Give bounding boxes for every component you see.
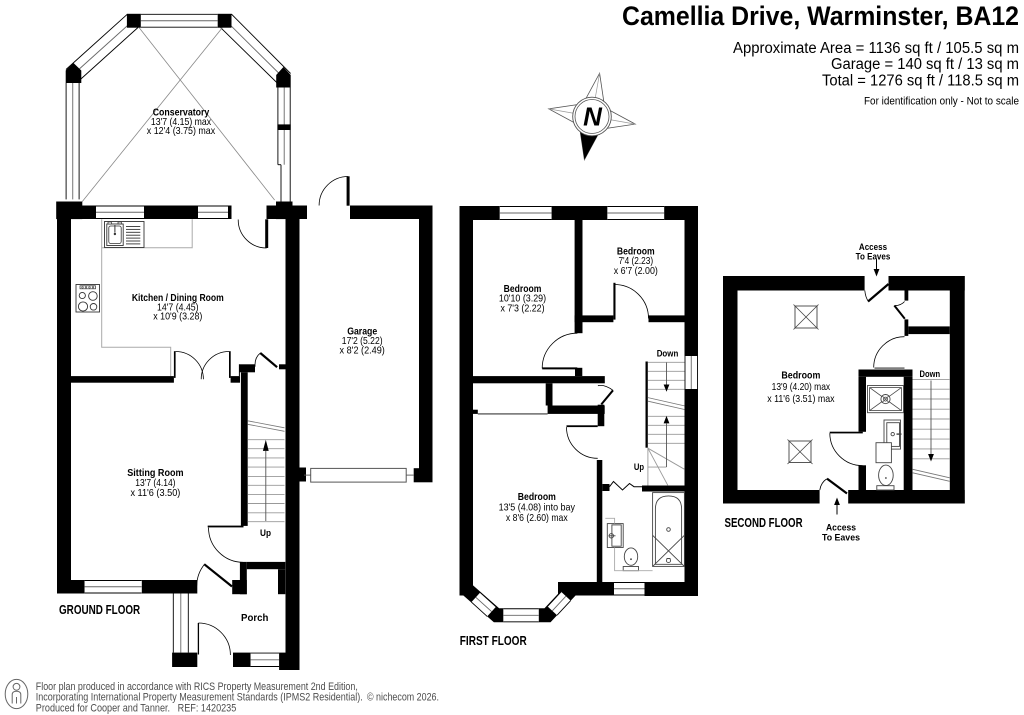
- svg-text:© nichecom 2026.: © nichecom 2026.: [367, 692, 439, 704]
- svg-text:Porch: Porch: [241, 612, 268, 624]
- svg-text:To Eaves: To Eaves: [822, 533, 860, 544]
- svg-text:For identification only - Not: For identification only - Not to scale: [864, 96, 1019, 108]
- svg-text:x 7'3 (2.22): x 7'3 (2.22): [500, 302, 544, 314]
- svg-text:Camellia Drive, Warminster, BA: Camellia Drive, Warminster, BA12: [622, 1, 1019, 31]
- svg-text:Garage = 140 sq ft / 13 sq m: Garage = 140 sq ft / 13 sq m: [831, 56, 1019, 73]
- svg-text:x 11'6 (3.50): x 11'6 (3.50): [130, 487, 180, 499]
- svg-text:N: N: [583, 102, 603, 132]
- svg-text:13'9 (4.20) max: 13'9 (4.20) max: [772, 381, 831, 393]
- svg-text:GROUND FLOOR: GROUND FLOOR: [59, 603, 140, 617]
- svg-text:x 10'9 (3.28): x 10'9 (3.28): [153, 311, 202, 323]
- svg-text:x 8'2 (2.49): x 8'2 (2.49): [340, 345, 385, 357]
- svg-text:Up: Up: [260, 528, 271, 539]
- svg-text:Approximate Area = 1136 sq ft: Approximate Area = 1136 sq ft / 105.5 sq…: [733, 40, 1019, 57]
- svg-text:x 6'7 (2.00): x 6'7 (2.00): [614, 265, 658, 277]
- svg-text:SECOND FLOOR: SECOND FLOOR: [725, 516, 803, 530]
- svg-text:x 12'4 (3.75) max: x 12'4 (3.75) max: [147, 125, 216, 137]
- svg-text:x 8'6 (2.60) max: x 8'6 (2.60) max: [506, 512, 568, 524]
- svg-text:Up: Up: [634, 462, 644, 473]
- svg-text:Down: Down: [657, 348, 679, 359]
- svg-text:FIRST FLOOR: FIRST FLOOR: [460, 634, 527, 648]
- svg-text:Produced for Cooper and Tanner: Produced for Cooper and Tanner. REF: 142…: [36, 702, 237, 714]
- svg-text:To Eaves: To Eaves: [856, 251, 891, 262]
- svg-text:Total = 1276 sq ft / 118.5 sq: Total = 1276 sq ft / 118.5 sq m: [822, 72, 1019, 89]
- svg-text:Down: Down: [920, 369, 941, 380]
- svg-text:x 11'6 (3.51) max: x 11'6 (3.51) max: [767, 393, 835, 405]
- svg-text:Bedroom: Bedroom: [781, 370, 820, 382]
